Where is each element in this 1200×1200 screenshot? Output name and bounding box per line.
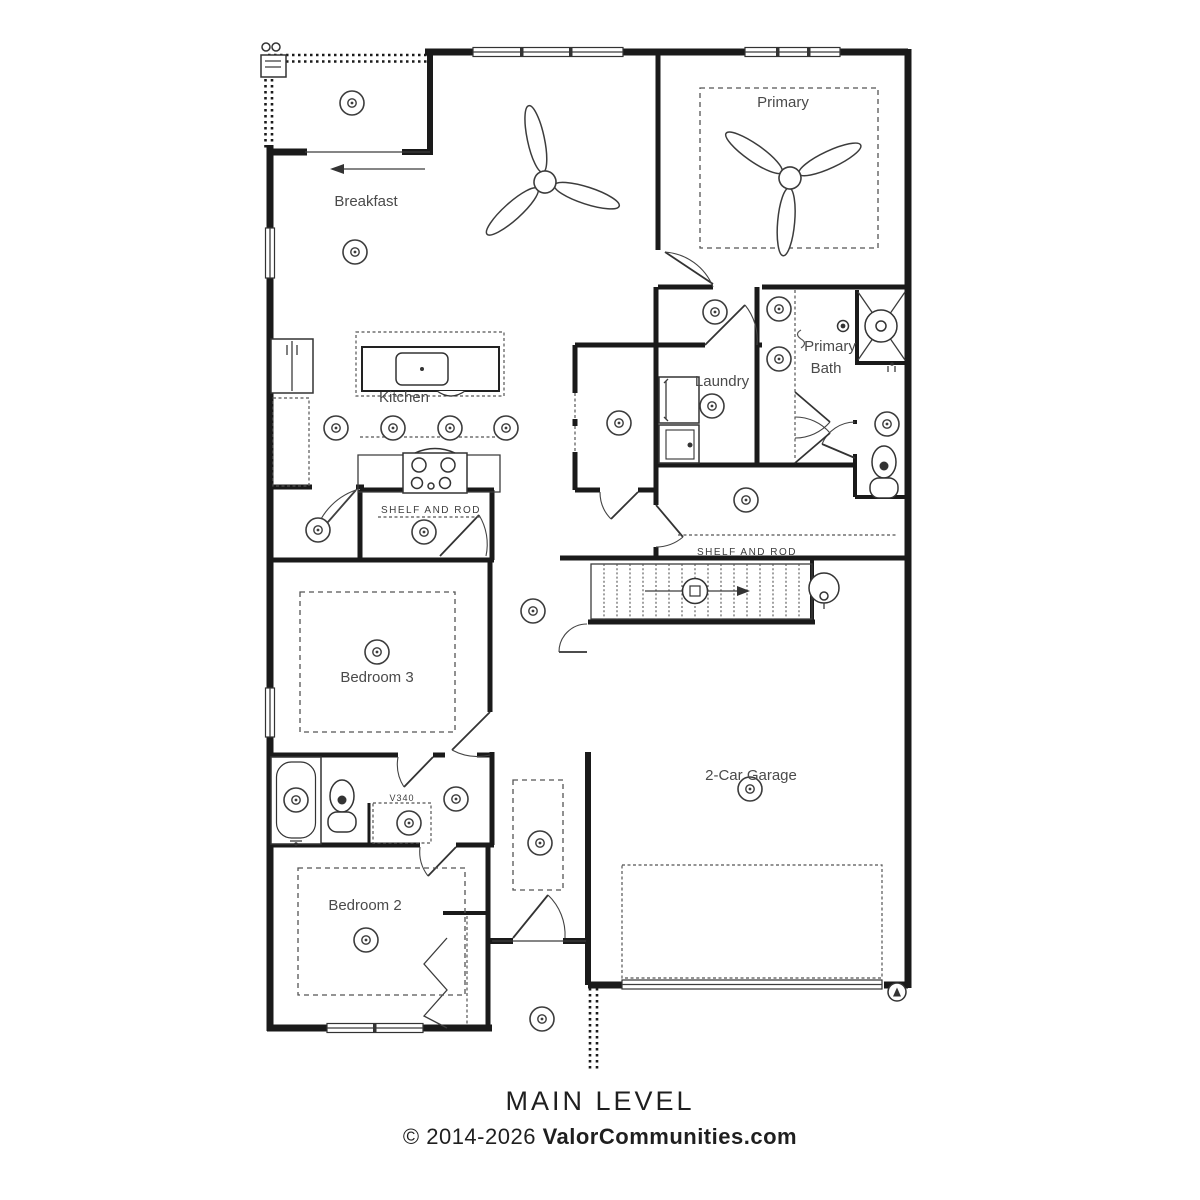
recessed-light-icon: [438, 416, 462, 440]
recessed-light-icon: [734, 488, 758, 512]
recessed-light-icon: [767, 347, 791, 371]
refrigerator-icon: [271, 339, 313, 393]
recessed-light-icon: [365, 640, 389, 664]
kitchen-fixtures: [271, 332, 504, 493]
recessed-light-icon: [530, 1007, 554, 1031]
stair-marker-icon: [683, 579, 708, 604]
shower-icon: [858, 292, 905, 372]
recessed-light-icon: [381, 416, 405, 440]
grill-icon: [261, 43, 286, 77]
copyright-line: © 2014-2026 ValorCommunities.com: [0, 1124, 1200, 1150]
entry-porch: [492, 941, 597, 1070]
recessed-light-icon: [494, 416, 518, 440]
recessed-light-icon: [412, 520, 436, 544]
room-label-primary: Primary: [757, 94, 809, 111]
room-label-primary-bath-1: Primary: [804, 338, 856, 355]
toilet-icon: [328, 780, 356, 832]
bifold-door: [424, 938, 447, 1028]
room-label-laundry: Laundry: [695, 373, 750, 390]
stair-arrow-head: [737, 586, 750, 596]
recessed-light-icon: [444, 787, 468, 811]
room-label-kitchen: Kitchen: [379, 389, 429, 406]
recessed-light-icon: [397, 811, 421, 835]
room-label-breakfast: Breakfast: [334, 193, 398, 210]
room-label-garage: 2-Car Garage: [705, 767, 797, 784]
slider-arrow-icon: [330, 164, 344, 174]
recessed-light-icon: [284, 788, 308, 812]
recessed-light-icon: [703, 300, 727, 324]
closet-label-shelf-and-rod-1: SHELF AND ROD: [381, 505, 481, 516]
garage-door-clearance: [622, 865, 882, 978]
exhaust-fan-icon: [838, 321, 849, 332]
garage-door: [622, 980, 882, 989]
bedroom2-ceiling: [298, 868, 465, 995]
stairs: [591, 564, 812, 619]
room-label-bedroom2: Bedroom 2: [328, 897, 401, 914]
recessed-light-icon: [875, 412, 899, 436]
recessed-light-icon: [521, 599, 545, 623]
room-label-bedroom3: Bedroom 3: [340, 669, 413, 686]
ceiling-treatments: [298, 88, 898, 995]
recessed-light-icon: [340, 91, 364, 115]
toilet-icon: [870, 446, 898, 498]
page-title: MAIN LEVEL: [0, 1086, 1200, 1117]
closet-label-shelf-and-rod-2: SHELF AND ROD: [697, 547, 797, 558]
recessed-light-icon: [528, 831, 552, 855]
floor-plan-page: Breakfast Primary Kitchen Laundry Primar…: [0, 0, 1200, 1200]
dryer-icon: [659, 425, 699, 463]
recessed-light-icon: [767, 297, 791, 321]
washer-icon: [659, 377, 699, 423]
dishwasher-icon: [437, 391, 465, 396]
ceiling-fan-icon: [479, 99, 642, 274]
recessed-light-icon: [324, 416, 348, 440]
vanity-code-label: V340: [389, 793, 414, 803]
recessed-light-icon: [306, 518, 330, 542]
copyright-site: ValorCommunities.com: [543, 1124, 798, 1149]
recessed-light-icon: [700, 394, 724, 418]
floor-plan-svg: Breakfast Primary Kitchen Laundry Primar…: [0, 0, 1200, 1200]
recessed-light-icon: [354, 928, 378, 952]
pantry-counter: [273, 398, 309, 486]
copyright-prefix: © 2014-2026: [403, 1124, 543, 1149]
recessed-light-icon: [607, 411, 631, 435]
recessed-light-icon: [343, 240, 367, 264]
room-label-primary-bath-2: Bath: [811, 360, 842, 377]
corner-marker-icon: [888, 983, 906, 1001]
cooktop-icon: [403, 449, 467, 494]
